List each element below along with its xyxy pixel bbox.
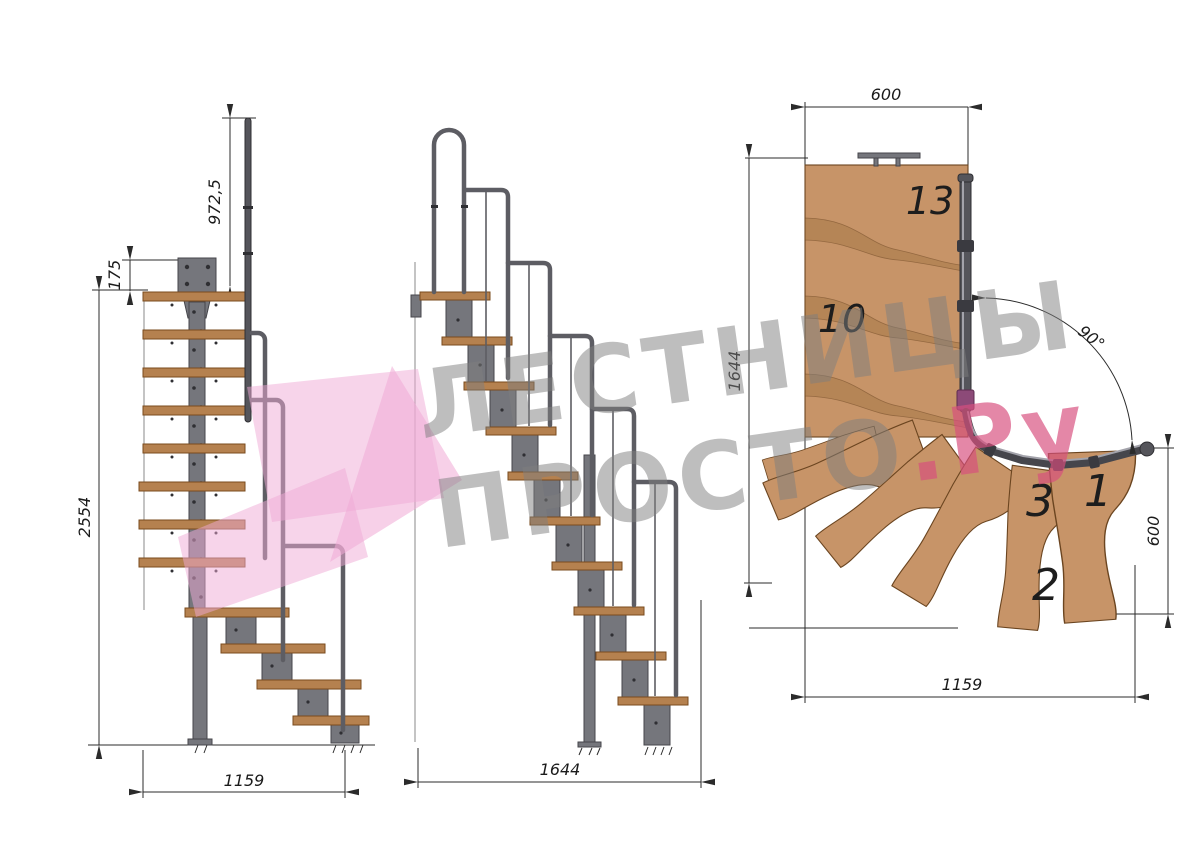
watermark: ЛЕСТНИЦЫ ПРОСТО.Ру bbox=[178, 261, 1099, 617]
dim-label-top-offset: 175 bbox=[105, 260, 124, 291]
technical-drawing-canvas: 2554 175 972,5 1159 bbox=[0, 0, 1200, 849]
top-mounting-plate bbox=[178, 258, 216, 292]
dim-label-total-height: 2554 bbox=[75, 497, 94, 538]
wall-fixing-bracket bbox=[858, 153, 920, 158]
handrail-loop bbox=[434, 130, 464, 292]
dim-front-run: 1644 bbox=[418, 600, 701, 788]
step-number-2: 2 bbox=[1032, 560, 1060, 611]
dim-label-plan-bottom-run: 1159 bbox=[942, 675, 983, 694]
dim-top-offset: 175 bbox=[105, 260, 130, 291]
handrail-joint bbox=[957, 240, 974, 252]
dim-label-handrail-height: 972,5 bbox=[205, 179, 224, 225]
dim-label-front-run: 1644 bbox=[540, 760, 581, 779]
dim-side-run: 1159 bbox=[143, 771, 345, 792]
dim-label-side-run: 1159 bbox=[224, 771, 265, 790]
dim-plan-bottom-run: 1159 bbox=[805, 675, 1135, 697]
dim-label-plan-top-width: 600 bbox=[871, 85, 902, 104]
watermark-text: ЛЕСТНИЦЫ ПРОСТО.Ру bbox=[410, 261, 1099, 571]
dim-plan-top-width: 600 bbox=[805, 85, 968, 107]
dim-total-height: 2554 bbox=[75, 290, 99, 745]
central-column bbox=[182, 292, 212, 745]
dim-plan-right-width: 600 bbox=[1144, 448, 1168, 614]
step-number-13: 13 bbox=[906, 179, 954, 223]
blueprint-page: 2554 175 972,5 1159 bbox=[0, 0, 1200, 849]
dim-label-plan-right-width: 600 bbox=[1144, 516, 1163, 547]
handrail-end-cap bbox=[1140, 442, 1154, 456]
